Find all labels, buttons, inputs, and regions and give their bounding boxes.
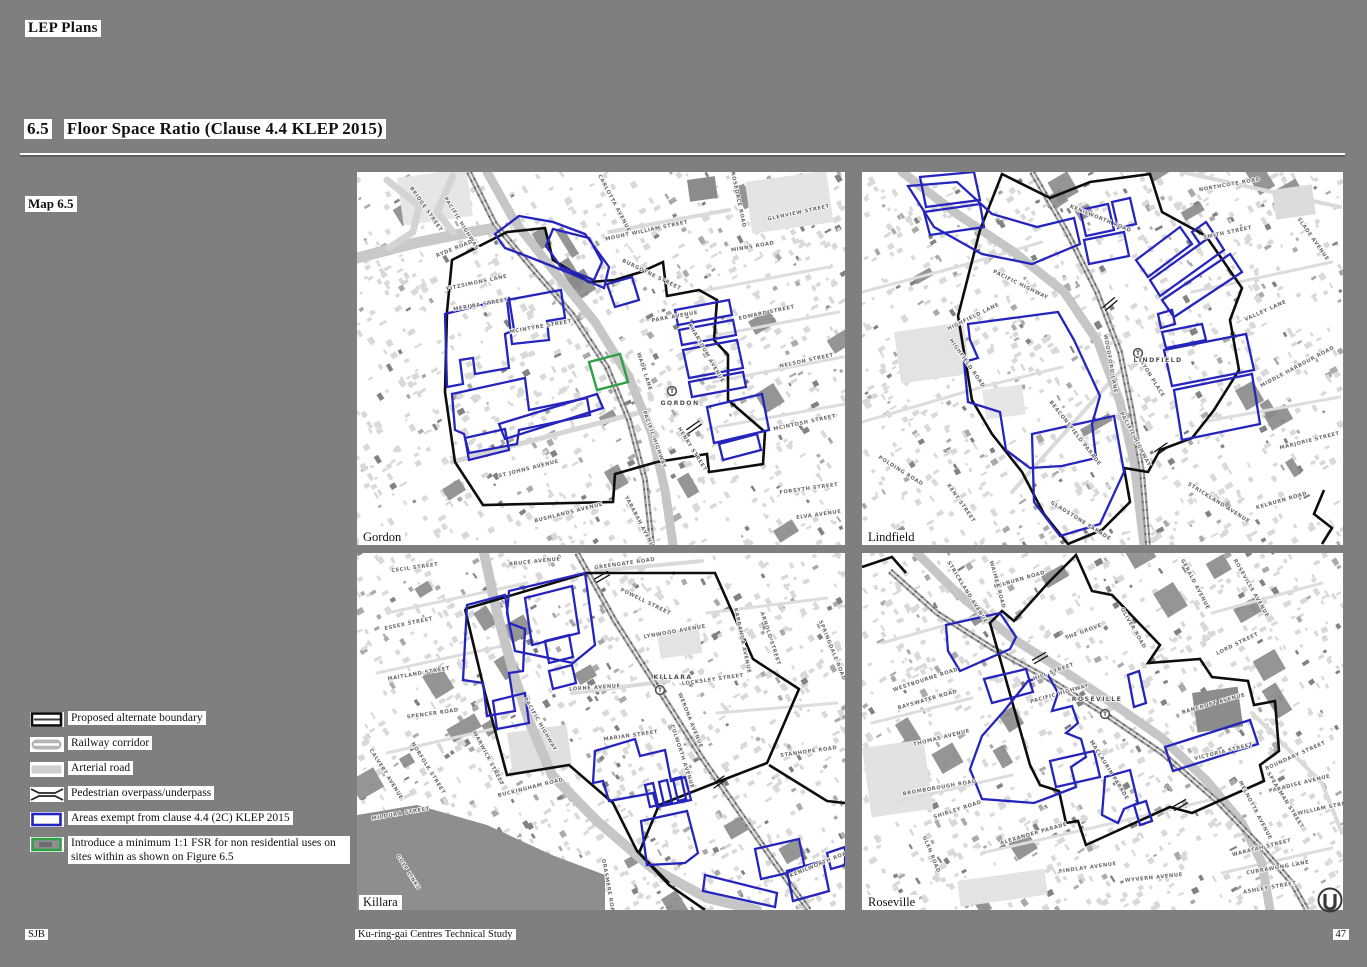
map-panel-killara: CECIL STREETBRUCE AVENUEGREENGATE ROADPO… xyxy=(357,553,845,910)
station-label: KILLARA xyxy=(653,674,692,681)
legend-item-label: Pedestrian overpass/underpass xyxy=(68,786,214,800)
section-number: 6.5 xyxy=(24,119,52,139)
legend-item-label: Railway corridor xyxy=(68,736,152,750)
map-name-label: Gordon xyxy=(359,530,405,545)
footer-document-title: Ku-ring-gai Centres Technical Study xyxy=(355,929,516,940)
overpass-swatch-icon xyxy=(30,787,64,802)
legend-item-label: Areas exempt from clause 4.4 (2C) KLEP 2… xyxy=(68,811,293,825)
map-panel-roseville: KELBURN ROADSTRICKLAND AVENUEWAIMEA ROAD… xyxy=(862,553,1343,910)
legend-item: Railway corridor xyxy=(30,736,350,752)
legend-item-label: Proposed alternate boundary xyxy=(68,711,206,725)
footer-page-number: 47 xyxy=(1333,929,1350,940)
station-label: ROSEVILLE xyxy=(1072,696,1123,703)
fsr-swatch-icon xyxy=(30,837,64,852)
railway-swatch-icon xyxy=(30,737,64,752)
north-arrow-icon xyxy=(1316,886,1344,914)
legend-item: Pedestrian overpass/underpass xyxy=(30,786,350,802)
section-title: Floor Space Ratio (Clause 4.4 KLEP 2015) xyxy=(64,119,386,139)
map-name-label: Killara xyxy=(359,895,402,910)
footer-brand: SJB xyxy=(25,929,48,940)
page-title: LEP Plans xyxy=(25,20,101,37)
legend-item: Proposed alternate boundary xyxy=(30,711,350,727)
legend-item: Arterial road xyxy=(30,761,350,777)
legend-item: Areas exempt from clause 4.4 (2C) KLEP 2… xyxy=(30,811,350,827)
section-heading: 6.5Floor Space Ratio (Clause 4.4 KLEP 20… xyxy=(24,119,386,139)
legend-item-label: Introduce a minimum 1:1 FSR for non resi… xyxy=(68,836,350,864)
heading-rule xyxy=(20,153,1345,155)
station-label: LINDFIELD xyxy=(1134,357,1183,364)
legend: Proposed alternate boundaryRailway corri… xyxy=(30,711,350,873)
exempt-swatch-icon xyxy=(30,812,64,827)
map-panel-lindfield: NORTHCOTE ROADSMITH STREETSLADE AVENUEKE… xyxy=(862,172,1343,545)
map-name-label: Lindfield xyxy=(864,530,919,545)
arterial-swatch-icon xyxy=(30,762,64,777)
map-panel-gordon: BRIDGE STREETPACIFIC HIGHWAYRYDE ROADFIT… xyxy=(357,172,845,545)
document-page: LEP Plans 6.5Floor Space Ratio (Clause 4… xyxy=(0,0,1367,967)
station-label: GORDON xyxy=(660,400,699,407)
legend-item-label: Arterial road xyxy=(68,761,133,775)
map-number-label: Map 6.5 xyxy=(25,196,77,212)
map-name-label: Roseville xyxy=(864,895,919,910)
boundary-swatch-icon xyxy=(30,712,64,727)
legend-item: Introduce a minimum 1:1 FSR for non resi… xyxy=(30,836,350,864)
